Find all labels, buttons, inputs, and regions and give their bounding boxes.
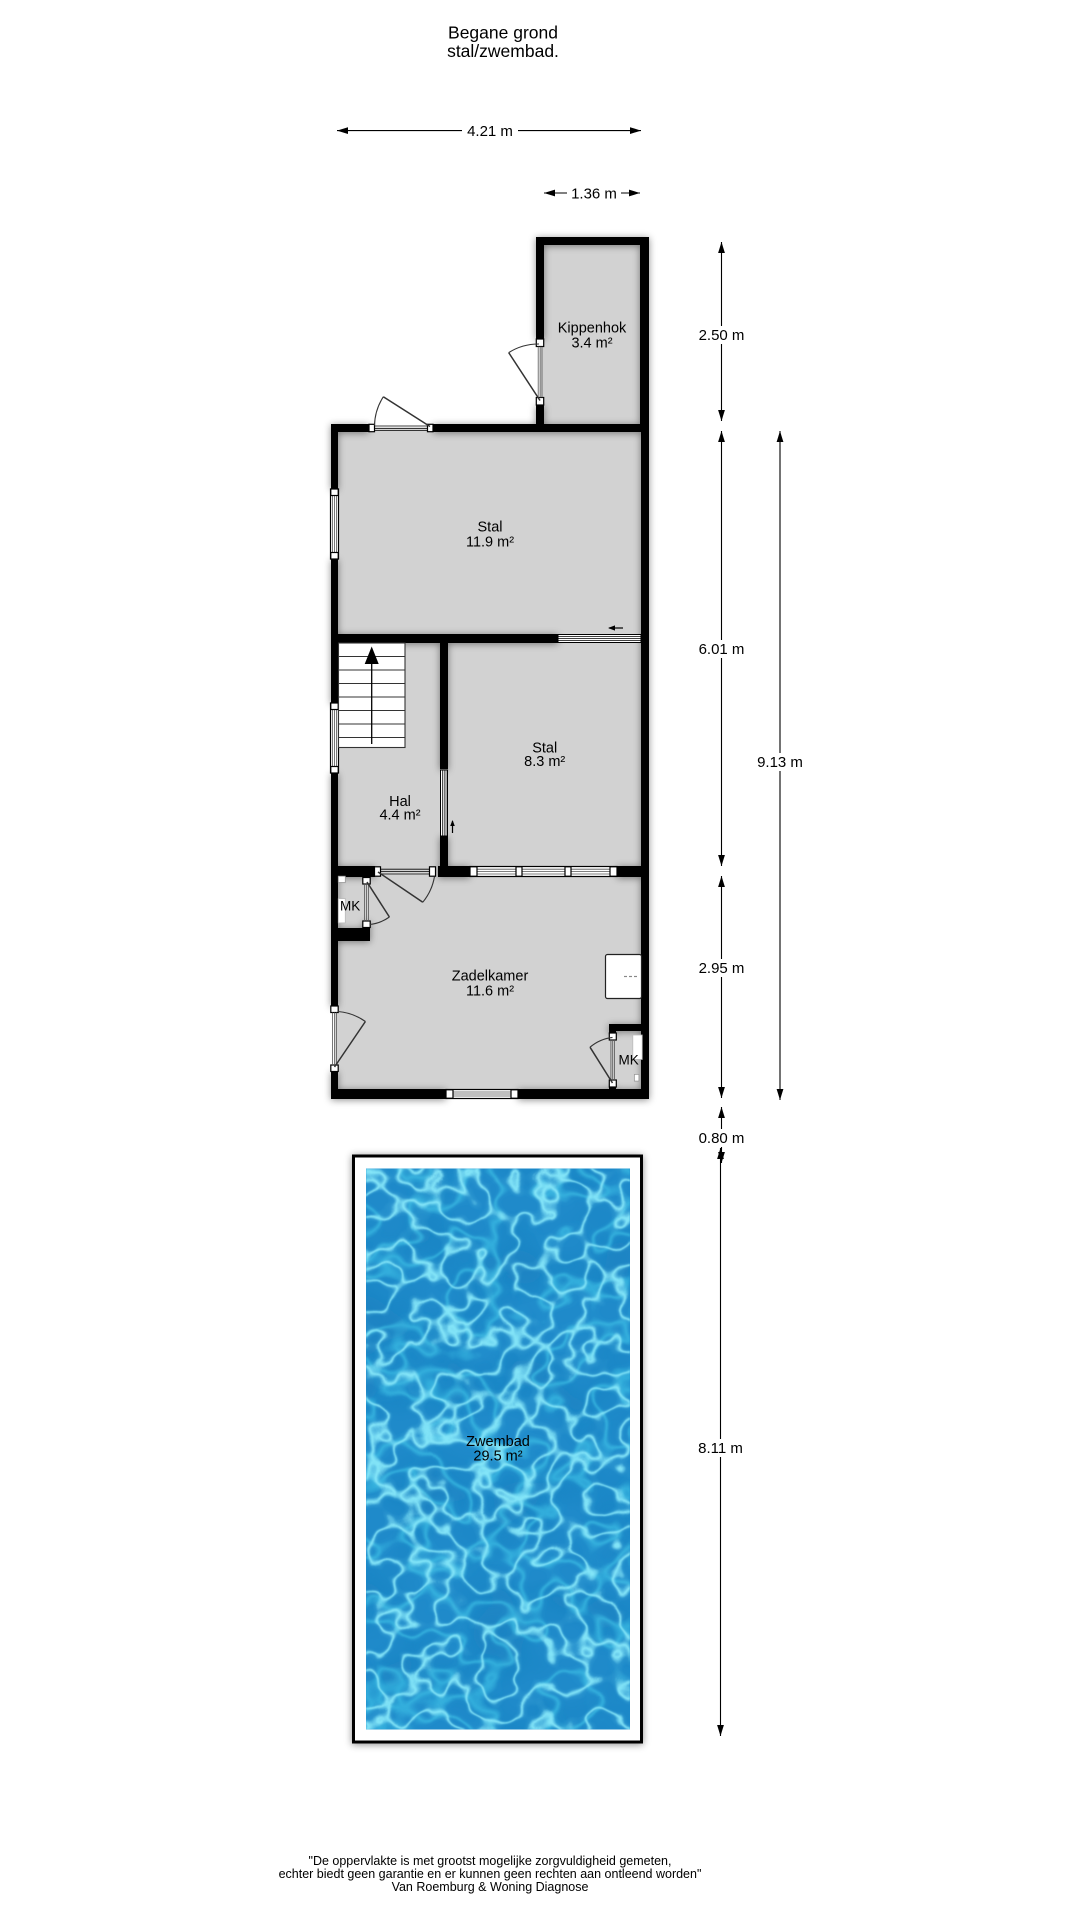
svg-text:6.01 m: 6.01 m bbox=[699, 641, 745, 658]
svg-text:8.11 m: 8.11 m bbox=[698, 1440, 743, 1457]
svg-text:Kippenhok: Kippenhok bbox=[558, 321, 627, 337]
svg-text:0.80 m: 0.80 m bbox=[699, 1130, 745, 1147]
svg-text:"De oppervlakte is met grootst: "De oppervlakte is met grootst mogelijke… bbox=[309, 1854, 672, 1868]
svg-text:11.9 m²: 11.9 m² bbox=[466, 535, 514, 551]
svg-text:29.5 m²: 29.5 m² bbox=[473, 1449, 522, 1465]
svg-text:MK: MK bbox=[340, 899, 360, 914]
svg-text:Stal: Stal bbox=[478, 520, 503, 536]
svg-text:11.6 m²: 11.6 m² bbox=[466, 984, 514, 1000]
svg-text:4.21 m: 4.21 m bbox=[467, 123, 513, 140]
svg-text:3.4 m²: 3.4 m² bbox=[571, 336, 612, 352]
svg-text:4.4 m²: 4.4 m² bbox=[379, 808, 420, 824]
svg-text:MK: MK bbox=[619, 1053, 639, 1068]
svg-text:Van Roemburg & Woning Diagnose: Van Roemburg & Woning Diagnose bbox=[392, 1880, 589, 1894]
svg-text:8.3 m²: 8.3 m² bbox=[524, 754, 565, 770]
svg-text:1.36 m: 1.36 m bbox=[571, 186, 617, 203]
svg-text:Zadelkamer: Zadelkamer bbox=[452, 969, 529, 985]
svg-text:2.50 m: 2.50 m bbox=[699, 327, 745, 344]
svg-text:stal/zwembad.: stal/zwembad. bbox=[447, 41, 559, 61]
svg-text:9.13 m: 9.13 m bbox=[757, 754, 803, 771]
svg-text:Begane grond: Begane grond bbox=[448, 23, 558, 43]
svg-text:2.95 m: 2.95 m bbox=[699, 960, 745, 977]
svg-text:echter biedt geen garantie en: echter biedt geen garantie en er kunnen … bbox=[279, 1867, 702, 1881]
